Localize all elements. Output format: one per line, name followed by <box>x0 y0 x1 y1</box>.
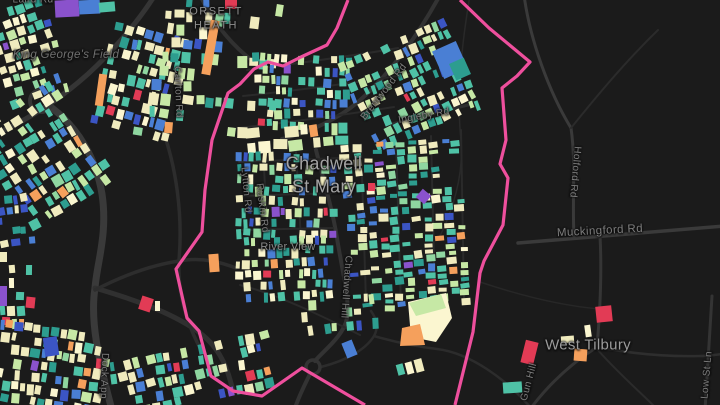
building[interactable] <box>119 36 130 49</box>
building[interactable] <box>370 232 378 239</box>
building[interactable] <box>16 61 23 70</box>
building[interactable] <box>294 258 301 266</box>
building[interactable] <box>165 10 172 19</box>
building[interactable] <box>368 221 376 225</box>
building[interactable] <box>431 303 439 310</box>
building[interactable] <box>369 240 378 248</box>
building[interactable] <box>164 122 173 134</box>
building[interactable] <box>172 386 183 397</box>
building[interactable] <box>29 397 35 405</box>
building[interactable] <box>269 196 276 205</box>
building[interactable] <box>182 94 194 104</box>
building[interactable] <box>457 198 465 202</box>
building[interactable] <box>561 336 574 344</box>
building[interactable] <box>280 280 286 290</box>
building[interactable] <box>236 153 242 162</box>
building[interactable] <box>276 248 282 258</box>
building[interactable] <box>425 224 433 232</box>
building[interactable] <box>432 189 441 194</box>
building[interactable] <box>376 142 383 148</box>
building[interactable] <box>136 368 144 378</box>
building[interactable] <box>339 154 349 161</box>
building[interactable] <box>265 260 269 267</box>
building[interactable] <box>386 148 394 155</box>
building[interactable] <box>83 342 93 354</box>
building[interactable] <box>429 150 438 155</box>
building[interactable] <box>151 79 161 90</box>
building[interactable] <box>319 197 326 204</box>
building[interactable] <box>225 0 237 9</box>
building[interactable] <box>323 208 327 217</box>
building[interactable] <box>307 220 313 227</box>
building[interactable] <box>43 336 60 357</box>
building[interactable] <box>435 236 444 242</box>
building[interactable] <box>456 83 464 92</box>
building[interactable] <box>0 32 5 42</box>
building[interactable] <box>269 152 275 162</box>
building[interactable] <box>236 385 243 394</box>
building[interactable] <box>385 142 393 148</box>
building[interactable] <box>264 186 270 195</box>
building[interactable] <box>318 269 324 279</box>
building[interactable] <box>363 87 370 95</box>
building[interactable] <box>124 110 134 120</box>
building[interactable] <box>403 271 413 277</box>
building[interactable] <box>443 29 452 39</box>
building[interactable] <box>254 75 261 83</box>
building[interactable] <box>302 257 307 267</box>
building[interactable] <box>331 123 337 135</box>
building[interactable] <box>409 91 417 100</box>
building[interactable] <box>372 318 379 329</box>
building[interactable] <box>446 236 455 243</box>
building[interactable] <box>135 381 146 392</box>
building[interactable] <box>432 195 442 204</box>
building[interactable] <box>414 259 424 267</box>
building[interactable] <box>325 110 329 119</box>
building[interactable] <box>34 385 41 395</box>
building[interactable] <box>216 97 222 106</box>
building[interactable] <box>403 262 413 269</box>
building[interactable] <box>16 292 24 300</box>
building[interactable] <box>186 0 192 7</box>
building[interactable] <box>51 388 59 397</box>
building[interactable] <box>595 305 613 323</box>
building[interactable] <box>445 222 455 228</box>
building[interactable] <box>354 152 362 158</box>
building[interactable] <box>393 49 403 60</box>
building[interactable] <box>174 10 184 18</box>
building[interactable] <box>435 214 443 221</box>
building[interactable] <box>376 196 386 201</box>
building[interactable] <box>99 1 116 12</box>
building[interactable] <box>0 332 10 343</box>
building[interactable] <box>425 243 433 248</box>
building[interactable] <box>299 100 305 107</box>
building[interactable] <box>161 132 170 142</box>
building[interactable] <box>320 236 325 244</box>
building[interactable] <box>49 362 57 372</box>
building[interactable] <box>268 282 272 290</box>
building[interactable] <box>464 79 473 89</box>
building[interactable] <box>308 300 316 311</box>
building[interactable] <box>352 144 361 152</box>
building[interactable] <box>124 25 135 36</box>
building[interactable] <box>252 164 258 173</box>
building[interactable] <box>263 270 271 277</box>
building[interactable] <box>383 79 392 90</box>
building[interactable] <box>416 87 424 97</box>
building[interactable] <box>276 86 280 94</box>
building[interactable] <box>503 381 523 393</box>
building[interactable] <box>356 321 362 331</box>
building[interactable] <box>308 110 314 117</box>
building[interactable] <box>461 247 468 251</box>
building[interactable] <box>205 97 214 108</box>
building[interactable] <box>258 98 266 105</box>
building[interactable] <box>171 374 178 384</box>
building[interactable] <box>172 38 181 48</box>
building[interactable] <box>2 77 12 88</box>
building[interactable] <box>247 344 256 354</box>
building[interactable] <box>267 97 273 106</box>
building[interactable] <box>467 89 476 99</box>
building[interactable] <box>407 155 416 163</box>
building[interactable] <box>41 327 49 337</box>
building[interactable] <box>341 145 349 152</box>
building[interactable] <box>391 207 399 215</box>
building[interactable] <box>327 90 333 98</box>
building[interactable] <box>442 139 449 143</box>
building[interactable] <box>394 276 404 285</box>
building[interactable] <box>275 175 283 183</box>
building[interactable] <box>378 213 388 221</box>
building[interactable] <box>2 19 12 29</box>
building[interactable] <box>397 108 408 119</box>
building[interactable] <box>357 218 365 224</box>
building[interactable] <box>446 243 456 248</box>
building[interactable] <box>461 270 469 276</box>
building[interactable] <box>403 241 411 246</box>
building[interactable] <box>78 331 85 341</box>
building[interactable] <box>305 246 311 253</box>
building[interactable] <box>403 254 413 259</box>
building[interactable] <box>157 377 164 388</box>
building[interactable] <box>309 124 319 138</box>
building[interactable] <box>260 164 268 171</box>
building[interactable] <box>315 279 321 287</box>
building[interactable] <box>390 244 400 251</box>
building[interactable] <box>450 148 460 153</box>
building[interactable] <box>167 23 174 34</box>
building[interactable] <box>420 99 428 108</box>
building[interactable] <box>41 361 48 370</box>
building[interactable] <box>204 0 210 7</box>
building[interactable] <box>23 0 33 10</box>
building[interactable] <box>31 360 40 371</box>
building[interactable] <box>400 35 409 45</box>
building[interactable] <box>242 260 250 270</box>
building[interactable] <box>20 347 29 357</box>
building[interactable] <box>29 348 40 358</box>
building[interactable] <box>236 218 242 226</box>
building[interactable] <box>446 203 454 211</box>
building[interactable] <box>294 174 303 184</box>
building[interactable] <box>256 343 262 351</box>
building[interactable] <box>326 245 333 253</box>
building[interactable] <box>283 186 288 194</box>
building[interactable] <box>272 219 277 227</box>
building[interactable] <box>181 52 191 63</box>
building[interactable] <box>520 340 538 365</box>
building[interactable] <box>438 265 447 272</box>
building[interactable] <box>45 399 53 405</box>
building[interactable] <box>371 133 379 142</box>
building[interactable] <box>322 280 326 288</box>
building[interactable] <box>418 156 428 162</box>
building[interactable] <box>186 12 192 22</box>
building[interactable] <box>299 77 306 85</box>
building[interactable] <box>461 297 471 305</box>
building[interactable] <box>5 149 16 160</box>
building[interactable] <box>26 265 32 275</box>
building[interactable] <box>367 197 376 204</box>
building[interactable] <box>84 367 92 376</box>
building[interactable] <box>426 272 436 278</box>
building[interactable] <box>379 208 387 212</box>
building[interactable] <box>402 223 410 230</box>
building[interactable] <box>345 308 351 317</box>
building[interactable] <box>344 72 353 81</box>
building[interactable] <box>12 17 20 26</box>
building[interactable] <box>408 140 416 144</box>
building[interactable] <box>450 86 457 96</box>
building[interactable] <box>136 78 146 90</box>
building[interactable] <box>60 389 69 401</box>
building[interactable] <box>135 26 145 36</box>
building[interactable] <box>347 224 355 231</box>
building[interactable] <box>419 291 427 298</box>
building[interactable] <box>456 232 465 240</box>
building[interactable] <box>67 329 78 341</box>
building[interactable] <box>8 65 17 74</box>
building[interactable] <box>51 40 58 48</box>
building[interactable] <box>208 254 219 273</box>
building[interactable] <box>106 105 116 116</box>
building[interactable] <box>404 129 412 139</box>
building[interactable] <box>405 361 415 374</box>
building[interactable] <box>79 0 101 15</box>
building[interactable] <box>178 67 186 78</box>
building[interactable] <box>408 278 416 286</box>
building[interactable] <box>298 55 304 64</box>
building[interactable] <box>358 243 367 250</box>
building[interactable] <box>433 69 440 78</box>
building[interactable] <box>346 321 354 331</box>
building[interactable] <box>394 86 403 95</box>
building[interactable] <box>291 164 296 171</box>
building[interactable] <box>15 98 25 108</box>
building[interactable] <box>439 294 448 302</box>
building[interactable] <box>392 227 399 234</box>
building[interactable] <box>73 366 83 376</box>
building[interactable] <box>24 322 33 331</box>
building[interactable] <box>0 66 7 75</box>
building[interactable] <box>451 288 459 294</box>
building[interactable] <box>20 383 25 391</box>
building[interactable] <box>236 195 243 202</box>
building[interactable] <box>278 197 283 206</box>
building[interactable] <box>60 329 67 338</box>
building[interactable] <box>331 111 335 119</box>
building[interactable] <box>315 99 322 107</box>
building[interactable] <box>415 28 424 38</box>
building[interactable] <box>407 146 415 153</box>
building[interactable] <box>281 208 285 215</box>
building[interactable] <box>170 53 178 62</box>
building[interactable] <box>389 171 397 180</box>
building[interactable] <box>321 165 329 174</box>
building[interactable] <box>458 93 469 104</box>
building[interactable] <box>446 229 455 235</box>
building[interactable] <box>282 87 286 94</box>
building[interactable] <box>115 22 125 31</box>
building[interactable] <box>306 235 313 244</box>
building[interactable] <box>317 209 322 218</box>
building[interactable] <box>250 16 260 28</box>
building[interactable] <box>290 219 297 228</box>
building[interactable] <box>183 384 194 396</box>
building[interactable] <box>398 191 408 196</box>
building[interactable] <box>413 358 424 373</box>
building[interactable] <box>284 153 291 161</box>
building[interactable] <box>180 347 188 358</box>
building[interactable] <box>148 92 160 105</box>
building[interactable] <box>243 282 250 292</box>
building[interactable] <box>363 293 368 301</box>
building[interactable] <box>195 368 207 380</box>
building[interactable] <box>395 270 403 275</box>
building[interactable] <box>371 71 380 80</box>
building[interactable] <box>71 390 81 399</box>
building[interactable] <box>53 401 63 405</box>
building[interactable] <box>63 82 70 92</box>
building[interactable] <box>258 119 265 126</box>
building[interactable] <box>55 376 62 385</box>
building[interactable] <box>260 53 266 61</box>
building[interactable] <box>237 56 247 68</box>
building[interactable] <box>325 68 331 77</box>
building[interactable] <box>199 27 207 39</box>
building[interactable] <box>25 297 35 309</box>
building[interactable] <box>304 268 310 276</box>
building[interactable] <box>145 354 156 365</box>
building[interactable] <box>269 65 273 73</box>
building[interactable] <box>193 39 201 50</box>
building[interactable] <box>313 187 317 196</box>
building[interactable] <box>429 263 436 271</box>
building[interactable] <box>28 236 34 244</box>
building[interactable] <box>428 141 438 148</box>
building[interactable] <box>182 40 193 50</box>
building[interactable] <box>2 43 9 51</box>
building[interactable] <box>382 115 393 127</box>
building[interactable] <box>361 111 371 121</box>
building[interactable] <box>159 65 169 76</box>
building[interactable] <box>123 359 133 371</box>
building[interactable] <box>390 194 397 198</box>
building[interactable] <box>348 215 355 222</box>
building[interactable] <box>92 393 102 403</box>
building[interactable] <box>321 176 327 185</box>
building[interactable] <box>418 139 427 145</box>
building[interactable] <box>446 257 456 265</box>
building[interactable] <box>55 0 80 18</box>
building[interactable] <box>283 248 290 256</box>
building[interactable] <box>10 239 19 247</box>
building[interactable] <box>414 233 422 238</box>
building[interactable] <box>389 216 398 225</box>
building[interactable] <box>449 250 456 254</box>
building[interactable] <box>288 139 303 152</box>
building[interactable] <box>0 320 5 330</box>
building[interactable] <box>349 272 359 276</box>
building[interactable] <box>387 180 397 187</box>
building[interactable] <box>369 294 375 305</box>
building[interactable] <box>237 174 242 183</box>
building[interactable] <box>283 98 290 108</box>
building[interactable] <box>333 68 338 77</box>
building[interactable] <box>0 286 7 306</box>
building[interactable] <box>259 249 266 257</box>
building[interactable] <box>281 76 289 86</box>
building[interactable] <box>449 266 457 273</box>
building[interactable] <box>249 218 254 226</box>
building[interactable] <box>313 137 321 147</box>
building[interactable] <box>266 109 272 117</box>
building[interactable] <box>328 279 333 288</box>
building[interactable] <box>227 127 236 137</box>
building[interactable] <box>364 158 372 162</box>
building[interactable] <box>339 100 347 108</box>
building[interactable] <box>274 99 282 109</box>
building[interactable] <box>441 101 452 113</box>
building[interactable] <box>214 340 224 350</box>
building[interactable] <box>409 180 417 185</box>
building[interactable] <box>290 236 297 245</box>
building[interactable] <box>292 197 299 206</box>
building[interactable] <box>319 246 325 254</box>
building[interactable] <box>263 65 269 73</box>
building[interactable] <box>44 28 53 38</box>
building[interactable] <box>353 158 362 166</box>
building[interactable] <box>385 268 392 274</box>
building[interactable] <box>178 373 185 384</box>
building[interactable] <box>351 249 358 254</box>
building[interactable] <box>425 234 433 241</box>
building[interactable] <box>289 185 297 192</box>
building[interactable] <box>436 91 445 101</box>
building[interactable] <box>41 155 49 164</box>
building[interactable] <box>259 86 265 94</box>
building[interactable] <box>247 206 251 214</box>
building[interactable] <box>88 381 98 391</box>
building[interactable] <box>205 354 214 365</box>
building[interactable] <box>252 260 259 267</box>
building[interactable] <box>235 261 240 268</box>
building[interactable] <box>273 139 287 149</box>
building[interactable] <box>198 355 204 364</box>
